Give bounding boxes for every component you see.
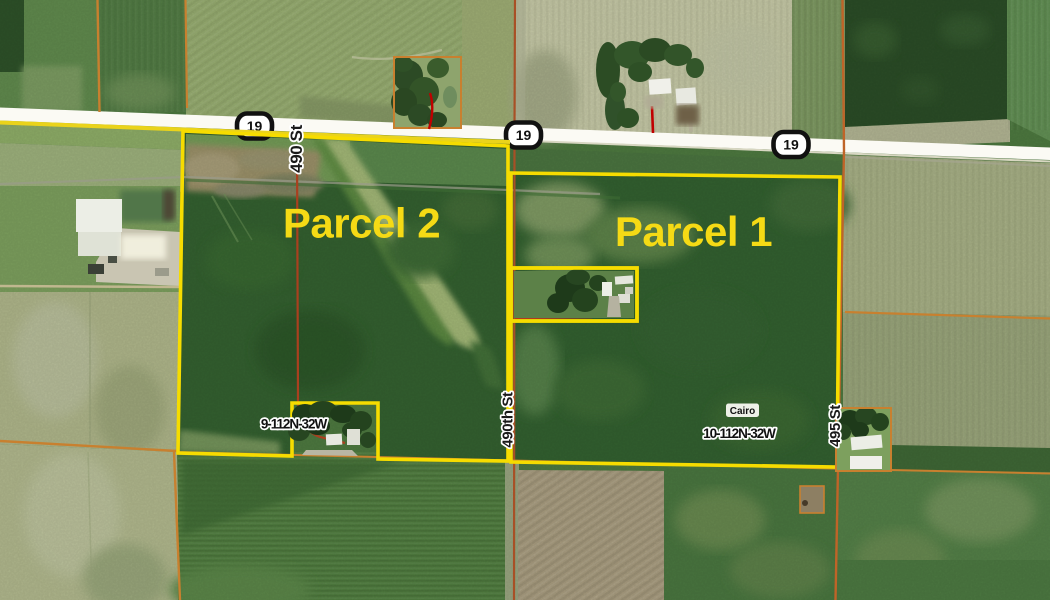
svg-text:490 St: 490 St [287, 124, 306, 172]
svg-text:19: 19 [783, 137, 799, 153]
svg-text:495 St: 495 St [827, 405, 844, 447]
svg-text:Cairo: Cairo [730, 406, 756, 417]
svg-text:10-112N-32W: 10-112N-32W [703, 426, 776, 441]
svg-text:Parcel 2: Parcel 2 [283, 200, 440, 247]
svg-text:Parcel 1: Parcel 1 [615, 208, 772, 255]
svg-text:9-112N-32W: 9-112N-32W [261, 417, 328, 432]
svg-text:19: 19 [516, 127, 532, 143]
svg-text:490th St: 490th St [500, 392, 517, 448]
